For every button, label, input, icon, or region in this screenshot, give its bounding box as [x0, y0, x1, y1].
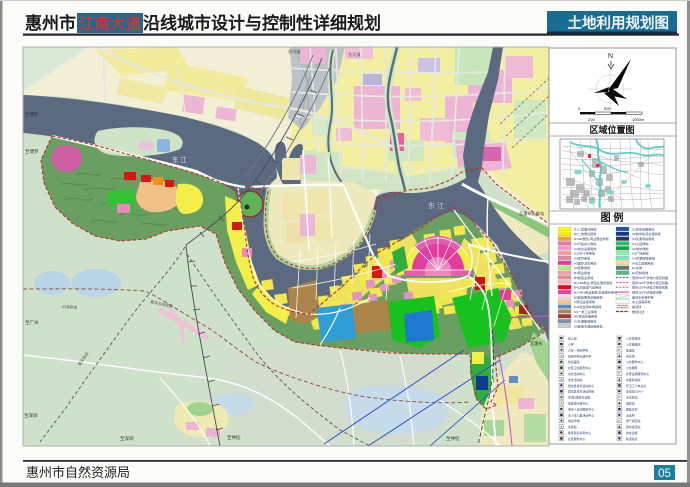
svg-text:公共服务中心: 公共服务中心 [626, 359, 643, 364]
svg-text:A1行政办公用地: A1行政办公用地 [574, 241, 596, 246]
svg-text:蓝线水系保护带: 蓝线水系保护带 [632, 294, 654, 299]
svg-text:大: 大 [560, 377, 563, 382]
svg-text:养老设施服务中心: 养老设施服务中心 [626, 371, 649, 376]
svg-text:规划110千伏电缆线路: 规划110千伏电缆线路 [632, 290, 662, 295]
svg-text:金河道: 金河道 [288, 48, 301, 55]
svg-text:A33中小学用地: A33中小学用地 [574, 251, 595, 256]
svg-text:垃圾站: 垃圾站 [568, 424, 577, 429]
svg-text:现状220千伏电力架空线路: 现状220千伏电力架空线路 [632, 280, 668, 285]
svg-text:惠州市自然资源局: 惠州市自然资源局 [26, 465, 130, 480]
svg-text:N: N [608, 53, 613, 60]
svg-text:图 例: 图 例 [601, 211, 624, 224]
svg-text:消防站: 消防站 [626, 401, 635, 406]
svg-text:肉菜市场: 肉菜市场 [568, 418, 580, 423]
svg-text:燃气调压站: 燃气调压站 [626, 418, 641, 423]
svg-text:XG附属绿地用地: XG附属绿地用地 [632, 256, 655, 261]
svg-text:R1/R2居住-商业混合用地: R1/R2居住-商业混合用地 [574, 236, 609, 241]
svg-text:至惠东: 至惠东 [530, 340, 543, 346]
svg-text:惠州市: 惠州市 [25, 13, 76, 33]
svg-text:至惠州火车站: 至惠州火车站 [519, 210, 544, 217]
svg-text:A5医疗卫生用地: A5医疗卫生用地 [574, 260, 596, 265]
svg-text:社区服务中心: 社区服务中心 [568, 436, 585, 441]
svg-text:规划红线: 规划红线 [632, 309, 644, 314]
svg-text:S1城市道路用地: S1城市道路用地 [632, 226, 654, 231]
svg-text:居住区体育运动中心: 居住区体育运动中心 [568, 383, 594, 388]
svg-text:社区卫生服务中心: 社区卫生服务中心 [568, 365, 591, 370]
svg-text:老年人日间照料中心: 老年人日间照料中心 [568, 406, 594, 411]
svg-text:B9其他服务设施用地: B9其他服务设施用地 [574, 294, 603, 299]
svg-text:A9宗教用地: A9宗教用地 [574, 265, 590, 270]
svg-text:P: P [618, 372, 620, 376]
svg-text:W1物流仓储用地: W1物流仓储用地 [574, 314, 597, 319]
svg-text:地区级行政中心: 地区级行政中心 [568, 401, 588, 406]
svg-text:大: 大 [560, 400, 563, 405]
svg-text:公共厕所: 公共厕所 [626, 365, 638, 370]
svg-text:公交首末站: 公交首末站 [626, 336, 641, 341]
svg-text:至深圳: 至深圳 [24, 412, 38, 419]
svg-text:环卫工人休息点: 环卫工人休息点 [626, 383, 646, 388]
svg-text:B41加油加气站用地: B41加油加气站用地 [574, 285, 601, 290]
svg-text:P: P [618, 419, 620, 423]
svg-text:东 江: 东 江 [172, 155, 187, 164]
svg-text:幼儿园: 幼儿园 [568, 336, 577, 341]
svg-text:变电站110kV: 变电站110kV [626, 389, 643, 394]
svg-text:E2农林用地: E2农林用地 [632, 270, 648, 275]
svg-text:U供应设施用地: U供应设施用地 [574, 299, 595, 304]
svg-text:现状500千伏电力架空线路: 现状500千伏电力架空线路 [632, 275, 668, 280]
svg-text:派出所: 派出所 [626, 412, 635, 417]
svg-text:公交枢纽站: 公交枢纽站 [626, 342, 641, 347]
svg-text:M1一类工业用地: M1一类工业用地 [574, 309, 597, 314]
svg-text:区域位置图: 区域位置图 [589, 124, 634, 135]
svg-text:P: P [618, 348, 620, 352]
svg-text:现状110千伏电力架空线路: 现状110千伏电力架空线路 [632, 285, 668, 290]
svg-text:R2二类居住用地: R2二类居住用地 [574, 231, 597, 236]
svg-text:200: 200 [588, 117, 595, 122]
svg-text:W水工建筑用地: W水工建筑用地 [632, 260, 653, 265]
svg-text:九年一贯制学校: 九年一贯制学校 [568, 347, 588, 352]
svg-text:B1商业用地: B1商业用地 [574, 270, 590, 275]
svg-text:供水设施: 供水设施 [626, 430, 638, 435]
svg-text:05: 05 [658, 468, 671, 480]
svg-text:500: 500 [604, 106, 611, 111]
svg-text:停车场: 停车场 [626, 353, 635, 358]
svg-text:A2文化设施用地: A2文化设施用地 [574, 246, 596, 251]
svg-text:初级中学高级中学: 初级中学高级中学 [568, 353, 591, 358]
svg-text:垃圾转运站: 垃圾转运站 [626, 377, 641, 382]
svg-text:邮政支局: 邮政支局 [626, 406, 638, 411]
svg-text:居住区体育活动场地: 居住区体育活动场地 [568, 389, 594, 394]
svg-text:大: 大 [560, 424, 563, 429]
svg-text:东 江: 东 江 [428, 201, 444, 210]
svg-text:土地利用规划图: 土地利用规划图 [568, 14, 670, 32]
svg-text:沿海高速: 沿海高速 [62, 304, 78, 310]
svg-text:市(区)级体育设施: 市(区)级体育设施 [568, 395, 590, 400]
svg-text:轨道站点: 轨道站点 [626, 436, 638, 441]
svg-text:S2城市轨道交通用地: S2城市轨道交通用地 [632, 231, 661, 236]
svg-text:综合医院: 综合医院 [568, 359, 580, 364]
svg-text:B4旅馆业用地: B4旅馆业用地 [574, 275, 593, 280]
svg-text:文化活动中心: 文化活动中心 [568, 371, 585, 376]
svg-text:B1+B4商业-旅馆业混合用地: B1+B4商业-旅馆业混合用地 [574, 280, 612, 285]
svg-text:P: P [618, 395, 620, 399]
svg-text:给水加压站: 给水加压站 [626, 424, 641, 429]
svg-text:G2防护绿地: G2防护绿地 [632, 246, 649, 251]
svg-text:青少年儿童活动中心: 青少年儿童活动中心 [568, 412, 594, 417]
svg-text:至博罗: 至博罗 [25, 111, 39, 118]
svg-text:至深圳: 至深圳 [120, 435, 134, 442]
svg-text:至仲恺: 至仲恺 [446, 435, 460, 442]
svg-text:文化活动站: 文化活动站 [568, 377, 583, 382]
svg-text:1000m: 1000m [632, 117, 645, 122]
svg-text:大: 大 [560, 353, 563, 358]
svg-text:加油站: 加油站 [626, 347, 635, 352]
svg-text:A4体育用地: A4体育用地 [574, 256, 590, 261]
svg-text:E1水域: E1水域 [632, 265, 642, 270]
svg-text:至广州: 至广州 [25, 319, 39, 326]
svg-text:G1公园绿地: G1公园绿地 [632, 241, 649, 246]
svg-text:至仲恺: 至仲恺 [227, 434, 241, 441]
svg-text:S3交通枢纽用地: S3交通枢纽用地 [574, 319, 596, 324]
svg-text:至博罗: 至博罗 [25, 148, 39, 155]
svg-text:江南大道: 江南大道 [79, 14, 142, 33]
svg-text:G3广场用地: G3广场用地 [632, 251, 649, 256]
svg-text:污水泵站: 污水泵站 [626, 395, 638, 400]
svg-text:敬老院及养老中心: 敬老院及养老中心 [568, 430, 591, 435]
svg-text:S42社会停车场用地: S42社会停车场用地 [574, 304, 601, 309]
svg-text:金河道: 金河道 [348, 51, 361, 58]
svg-text:水上运输用地: 水上运输用地 [632, 299, 651, 304]
svg-text:R1二类居住用地: R1二类居住用地 [574, 226, 597, 231]
svg-text:S9其他交通设施用地: S9其他交通设施用地 [574, 323, 603, 328]
svg-text:S4交通场站用地: S4交通场站用地 [632, 236, 654, 241]
svg-text:B1+B41商业金融-加油混合用地: B1+B41商业金融-加油混合用地 [574, 290, 617, 295]
svg-text:航道线: 航道线 [632, 304, 641, 309]
svg-text:沿线城市设计与控制性详细规划: 沿线城市设计与控制性详细规划 [143, 13, 381, 33]
svg-text:小学: 小学 [568, 342, 574, 347]
